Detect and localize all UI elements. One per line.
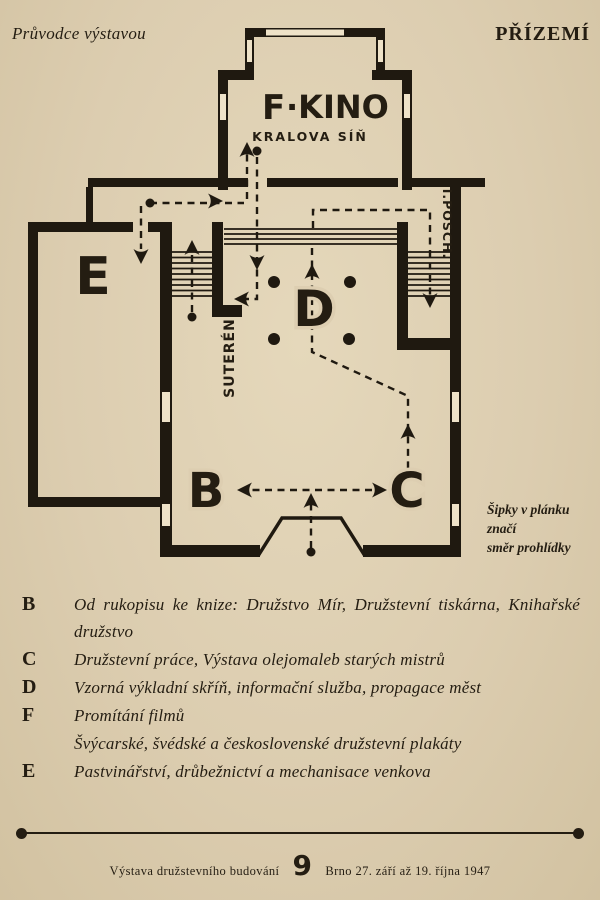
legend-text-e: Pastvinářství, drůbežnictví a mechanisac… [74, 758, 580, 785]
legend-text-f: Promítání filmů [74, 702, 580, 729]
tour-path [141, 152, 430, 548]
legend-text-f2: Švýcarské, švédské a československé druž… [74, 730, 580, 757]
arrows-note-line3: směr prohlídky [487, 539, 599, 558]
legend: B Od rukopisu ke knize: Družstvo Mír, Dr… [22, 591, 580, 786]
arrows-note: Šipky v plánku značí směr prohlídky [487, 501, 599, 558]
legend-item-d: D Vzorná výkladní skříň, informační služ… [22, 674, 580, 701]
legend-text-c: Družstevní práce, Výstava olejomaleb sta… [74, 646, 580, 673]
arrows-note-line1: Šipky v plánku [487, 501, 599, 520]
legend-item-e: E Pastvinářství, drůbežnictví a mechanis… [22, 758, 580, 785]
cinema-name-label: ·KINO [286, 88, 389, 126]
footer-exhibition-title: Výstava družstevního budování [110, 864, 280, 879]
footer-divider [18, 832, 582, 834]
divider-dot-right [573, 828, 584, 839]
first-floor-stairs-label: I.POSCH. [440, 189, 455, 260]
legend-key-b: B [22, 591, 52, 645]
hall-b-label: B [188, 463, 225, 519]
legend-key-f: F [22, 702, 52, 729]
legend-item-c: C Družstevní práce, Výstava olejomaleb s… [22, 646, 580, 673]
footer-dates: Brno 27. září až 19. října 1947 [325, 864, 490, 879]
cinema-sub-label: KRALOVA SÍŇ [252, 129, 368, 144]
legend-text-d: Vzorná výkladní skříň, informační služba… [74, 674, 580, 701]
legend-key-c: C [22, 646, 52, 673]
steps-band [224, 229, 397, 244]
divider-dot-left [16, 828, 27, 839]
floor-plan: F ·KINO KRALOVA SÍŇ E D B C SUTERÉN I.PO… [0, 0, 600, 578]
tour-arrowheads [134, 142, 438, 508]
legend-key-e: E [22, 758, 52, 785]
room-e-label: E [75, 247, 111, 307]
legend-text-b: Od rukopisu ke knize: Družstvo Mír, Druž… [74, 591, 580, 645]
legend-key-d: D [22, 674, 52, 701]
hall-c-label: C [389, 463, 424, 519]
legend-item-b: B Od rukopisu ke knize: Družstvo Mír, Dr… [22, 591, 580, 645]
basement-stairs-label: SUTERÉN [221, 318, 238, 398]
cinema-letter-label: F [262, 88, 285, 128]
arrows-note-line2: značí [487, 520, 599, 539]
legend-item-f-line2: Švýcarské, švédské a československé druž… [22, 730, 580, 757]
hall-d-label: D [293, 280, 335, 338]
page-number: 9 [292, 852, 312, 880]
footer: Výstava družstevního budování 9 Brno 27.… [0, 852, 600, 880]
legend-item-f: F Promítání filmů [22, 702, 580, 729]
